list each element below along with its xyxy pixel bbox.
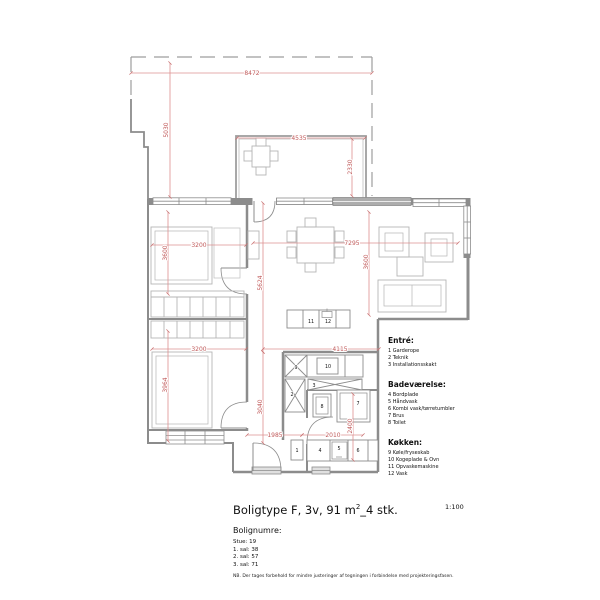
bolignumre-block: Bolignumre: Stue: 19 1. sal: 38 2. sal: …: [233, 526, 282, 569]
legend-heading-entre: Entré:: [388, 336, 498, 345]
dining-set: [287, 218, 344, 272]
fixture-label-2: 2: [290, 392, 293, 398]
dim-3600-living: 3600: [363, 254, 370, 269]
fixture-label-12: 12: [325, 319, 331, 325]
legend-item: 10 Kogeplade & Ovn: [388, 457, 498, 464]
legend-item: 11 Opvaskemaskine: [388, 464, 498, 471]
legend-item: 2 Teknik: [388, 355, 498, 362]
bedroom2-door: [221, 402, 247, 428]
window-living-right: [464, 206, 471, 254]
bedroom1-door: [221, 268, 247, 294]
title-block: Boligtype F, 3v, 91 m2_4 stk. 1:100: [233, 499, 493, 518]
fixture-label-3: 3: [312, 383, 315, 389]
legend-item: 5 Håndvask: [388, 399, 498, 406]
fixture-label-11: 11: [308, 319, 314, 325]
dim-5624: 5624: [257, 275, 264, 290]
bathroom-door: [307, 417, 333, 443]
bolignumre-item: 3. sal: 71: [233, 562, 282, 570]
terrace-door-opening: [253, 197, 277, 207]
legend: Entré: 1 Garderope 2 Teknik 3 Installati…: [388, 336, 498, 478]
legend-item: 8 Toilet: [388, 420, 498, 427]
fixture-label-7: 7: [356, 401, 359, 407]
kitchen-island: [287, 309, 350, 329]
title-text: Boligtype F, 3v, 91 m: [233, 503, 356, 517]
dim-3200-bed2: 3200: [191, 346, 206, 353]
dim-4115: 4115: [332, 346, 347, 353]
dim-3200-bed1: 3200: [191, 242, 206, 249]
dim-3600-bed1: 3600: [162, 245, 169, 260]
bolignumre-heading: Bolignumre:: [233, 526, 282, 535]
drawing-scale: 1:100: [445, 503, 464, 511]
bolignumre-item: Stue: 19: [233, 539, 282, 547]
legend-item: 4 Bordplade: [388, 392, 498, 399]
fixture-label-9: 9: [294, 365, 297, 371]
legend-item: 12 Vask: [388, 471, 498, 478]
bed-bedroom2: [152, 352, 212, 428]
bath-threshold: [312, 467, 330, 474]
drawing-title: Boligtype F, 3v, 91 m2_4 stk.: [233, 503, 398, 517]
bed-bedroom1: [151, 227, 212, 284]
dim-2400: 2400: [347, 418, 354, 433]
fixture-label-10: 10: [325, 364, 331, 370]
legend-heading-badevaerelse: Badeværelse:: [388, 380, 498, 389]
disclaimer-note: NB. Der tages forbehold for mindre juste…: [233, 574, 454, 579]
dim-3040: 3040: [257, 399, 264, 414]
legend-item: 3 Installationsskakt: [388, 362, 498, 369]
window-living-top-mid: [333, 198, 411, 206]
bolignumre-item: 1. sal: 38: [233, 547, 282, 555]
fixture-label-1: 1: [295, 448, 298, 454]
fixture-label-4: 4: [318, 448, 321, 454]
dim-2330: 2330: [347, 159, 354, 174]
bolignumre-item: 2. sal: 57: [233, 554, 282, 562]
island-sink-icon: [322, 312, 332, 318]
legend-heading-koekken: Køkken:: [388, 438, 498, 447]
bedroom1-cabinet: [214, 228, 240, 278]
living-shelf: [248, 231, 259, 259]
entry-threshold: [252, 467, 281, 474]
dim-5030: 5030: [163, 122, 170, 137]
wardrobe-strip-lower: [151, 321, 244, 338]
window-bedroom1-top: [153, 198, 231, 205]
armchair-1: [379, 227, 409, 257]
sofa: [378, 280, 446, 312]
fixture-label-6: 6: [356, 448, 359, 454]
coffee-table: [397, 257, 423, 276]
dim-7295: 7295: [344, 240, 359, 247]
fixture-label-8: 8: [320, 404, 323, 410]
floor-plan-page: 11 12 9 10 3 2 8 7 4 5 6 1: [0, 0, 600, 600]
wardrobe-strip-upper: [151, 291, 244, 317]
dim-8472: 8472: [244, 70, 259, 77]
legend-item: 9 Køle/fryseskab: [388, 450, 498, 457]
legend-item: 1 Garderope: [388, 348, 498, 355]
dim-4535: 4535: [291, 135, 306, 142]
fixture-label-5: 5: [337, 446, 340, 452]
window-living-top-left: [277, 198, 333, 205]
dim-1985: 1985: [267, 432, 282, 439]
dim-2010: 2010: [325, 432, 340, 439]
armchair-2: [425, 233, 453, 262]
window-living-top-right: [413, 199, 466, 207]
legend-item: 6 Kombi vask/tørretumbler: [388, 406, 498, 413]
window-bedroom2-bottom: [166, 431, 224, 444]
legend-item: 7 Brus: [388, 413, 498, 420]
title-suffix: _4 stk.: [360, 503, 398, 517]
dim-3964: 3964: [162, 377, 169, 392]
terrace-table-set: [244, 138, 278, 175]
